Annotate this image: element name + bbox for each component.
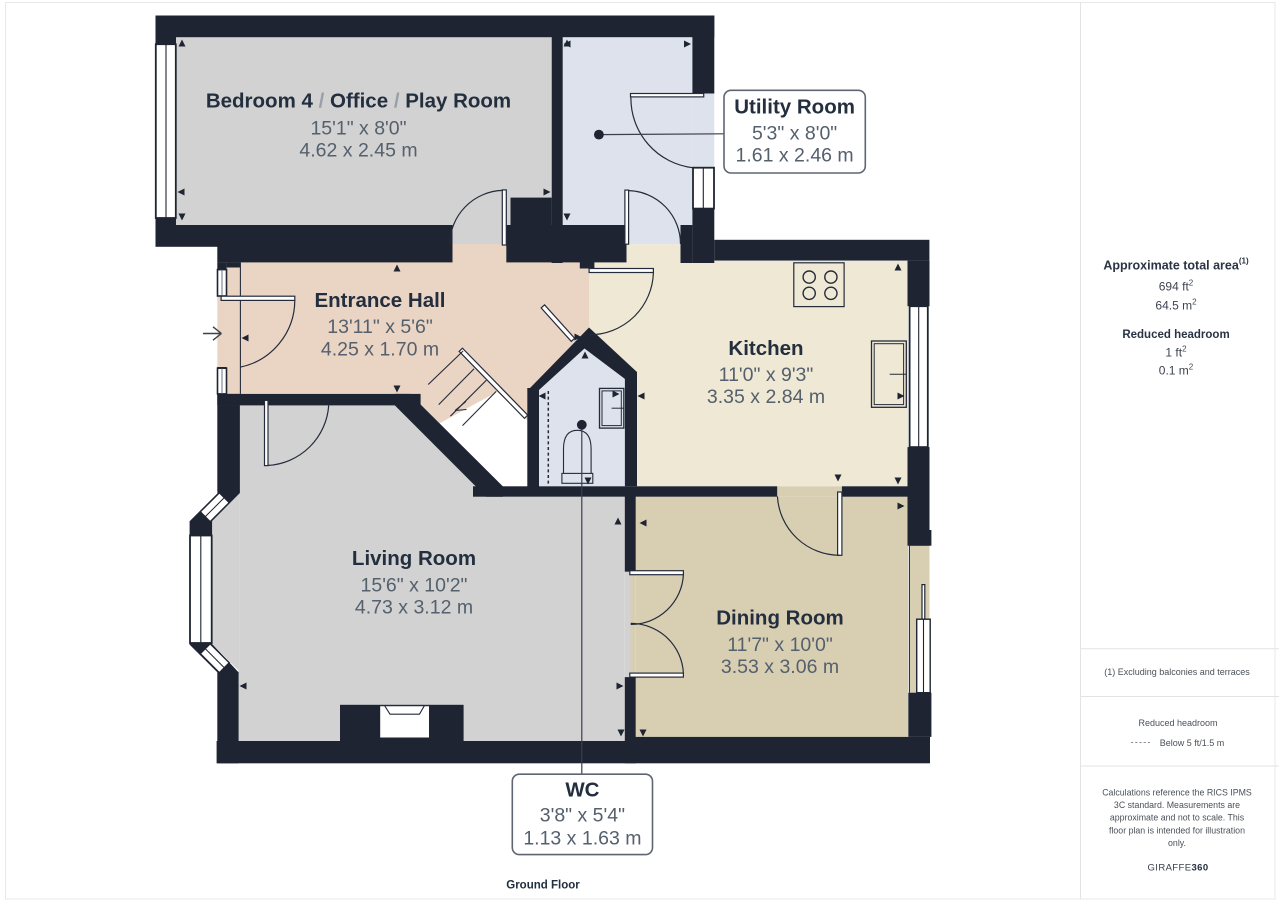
svg-text:only.: only. bbox=[1168, 838, 1186, 848]
svg-text:13'11" x 5'6": 13'11" x 5'6" bbox=[327, 316, 433, 338]
svg-text:3.35 x 2.84 m: 3.35 x 2.84 m bbox=[707, 386, 825, 408]
svg-text:Below 5 ft/1.5 m: Below 5 ft/1.5 m bbox=[1160, 738, 1225, 748]
svg-text:4.62 x 2.45 m: 4.62 x 2.45 m bbox=[299, 140, 417, 162]
svg-text:3.53 x 3.06 m: 3.53 x 3.06 m bbox=[721, 656, 839, 678]
svg-text:Bedroom 4 / Office / Play Room: Bedroom 4 / Office / Play Room bbox=[206, 90, 511, 113]
svg-text:11'0" x 9'3": 11'0" x 9'3" bbox=[719, 364, 814, 386]
svg-text:Kitchen: Kitchen bbox=[728, 337, 803, 360]
svg-text:Reduced headroom: Reduced headroom bbox=[1122, 329, 1229, 341]
svg-text:approximate and not to scale.: approximate and not to scale. This bbox=[1110, 813, 1245, 823]
svg-text:Dining Room: Dining Room bbox=[716, 607, 844, 630]
svg-text:3'8" x 5'4": 3'8" x 5'4" bbox=[540, 805, 625, 827]
svg-text:4.73 x 3.12 m: 4.73 x 3.12 m bbox=[355, 597, 473, 619]
svg-text:Entrance Hall: Entrance Hall bbox=[314, 289, 445, 312]
svg-text:WC: WC bbox=[565, 779, 599, 802]
svg-text:Reduced headroom: Reduced headroom bbox=[1138, 718, 1217, 728]
svg-text:GIRAFFE360: GIRAFFE360 bbox=[1147, 863, 1208, 874]
svg-text:0.1 m2: 0.1 m2 bbox=[1159, 363, 1194, 378]
svg-text:11'7" x 10'0": 11'7" x 10'0" bbox=[727, 634, 833, 656]
svg-text:694 ft2: 694 ft2 bbox=[1159, 279, 1194, 294]
svg-text:Living Room: Living Room bbox=[352, 547, 476, 570]
svg-text:64.5 m2: 64.5 m2 bbox=[1155, 298, 1197, 313]
svg-text:Utility Room: Utility Room bbox=[734, 96, 855, 119]
svg-text:(1) Excluding balconies and te: (1) Excluding balconies and terraces bbox=[1104, 667, 1250, 677]
svg-text:4.25 x 1.70 m: 4.25 x 1.70 m bbox=[321, 339, 439, 361]
svg-text:15'1" x 8'0": 15'1" x 8'0" bbox=[310, 118, 406, 140]
svg-text:1.61 x 2.46 m: 1.61 x 2.46 m bbox=[736, 145, 854, 167]
svg-text:5'3" x 8'0": 5'3" x 8'0" bbox=[752, 123, 837, 145]
svg-text:15'6" x 10'2": 15'6" x 10'2" bbox=[361, 575, 468, 597]
svg-text:Approximate total area(1): Approximate total area(1) bbox=[1103, 257, 1249, 273]
svg-text:Ground Floor: Ground Floor bbox=[506, 880, 580, 892]
svg-text:Calculations reference the RIC: Calculations reference the RICS IPMS bbox=[1102, 788, 1252, 798]
svg-text:1.13 x 1.63 m: 1.13 x 1.63 m bbox=[523, 828, 641, 850]
svg-text:3C standard. Measurements are: 3C standard. Measurements are bbox=[1114, 800, 1240, 810]
svg-text:floor plan is intended for ill: floor plan is intended for illustration bbox=[1109, 825, 1245, 835]
